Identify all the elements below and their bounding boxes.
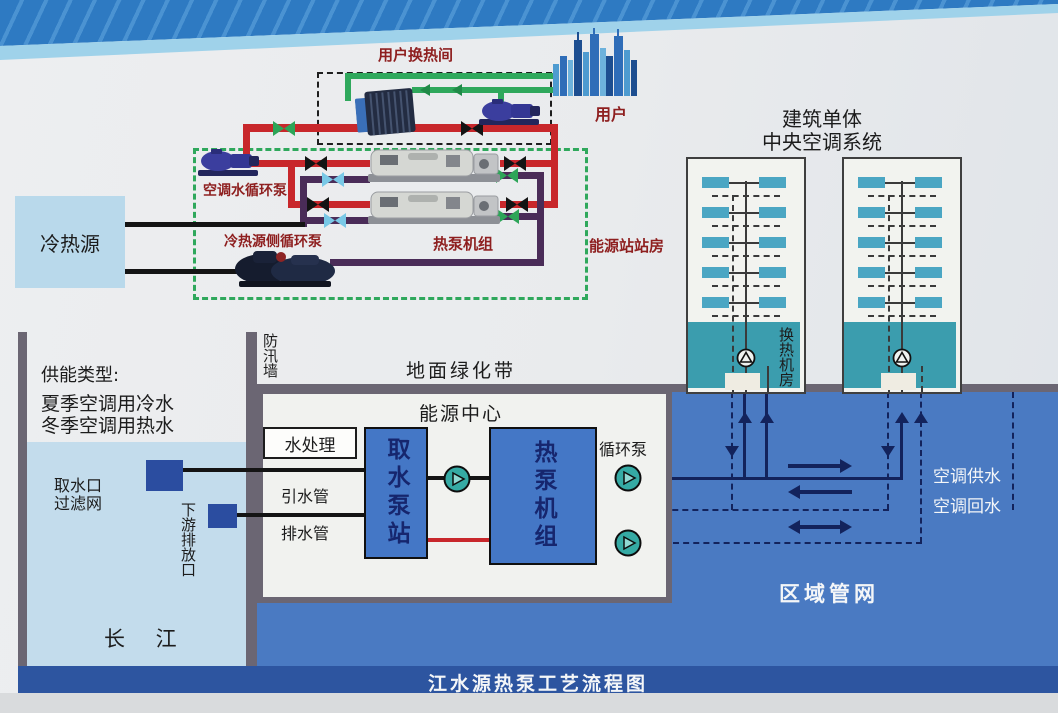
fan-coil [915, 237, 942, 248]
floor-dash [868, 195, 936, 197]
floor-connector [729, 272, 763, 274]
heat-pump-machine-1 [368, 145, 500, 183]
warm-return-pipe [424, 538, 490, 542]
valve-icon [497, 209, 519, 224]
b2-riser2 [921, 366, 923, 392]
diversion-pipe-label: 引水管 [281, 483, 329, 507]
supply-riser-b2 [900, 420, 903, 480]
fan-coil [759, 267, 786, 278]
right-arrow-icon [840, 520, 852, 534]
left-wall [18, 332, 27, 666]
user-circulation-pump [477, 97, 543, 127]
fan-coil [858, 237, 885, 248]
up-arrow-icon [914, 412, 928, 423]
heat-pump-units-label: 热泵机组 [433, 233, 493, 254]
supply-type-title: 供能类型: [41, 361, 119, 387]
green-flow-arrow [452, 84, 462, 96]
river-label: 长 江 [104, 623, 189, 653]
left-arrow-icon [788, 485, 800, 499]
diversion-pipe [183, 468, 366, 472]
fan-coil [858, 207, 885, 218]
energy-center-label: 能源中心 [419, 399, 503, 426]
valve-icon [322, 172, 344, 187]
footer-title: 江水源热泵工艺流程图 [18, 669, 1058, 696]
source-branch [300, 176, 307, 227]
chilled-supply-drop [345, 73, 351, 101]
city-skyline [551, 28, 639, 96]
fan-coil [759, 177, 786, 188]
floor-dash [712, 225, 780, 227]
ac-return-label: 空调回水 [933, 492, 1001, 517]
floor-connector [885, 212, 919, 214]
intake-block [146, 460, 183, 491]
fan-coil [759, 237, 786, 248]
pump-symbol [614, 529, 642, 557]
fan-coil [915, 297, 942, 308]
b2-base-block [881, 373, 916, 390]
floor-dash [868, 285, 936, 287]
fan-coil [702, 297, 729, 308]
building-2 [842, 157, 962, 394]
fan-coil [915, 207, 942, 218]
fan-coil [759, 297, 786, 308]
floor-connector [885, 242, 919, 244]
downstream-outlet-label: 下游排放口 [178, 502, 199, 577]
valve-icon [307, 197, 329, 212]
buildings-title-line2: 中央空调系统 [700, 126, 944, 155]
floor-dash [712, 285, 780, 287]
supply-winter-label: 冬季空调用热水 [41, 411, 174, 438]
chilled-return-pipe [412, 87, 557, 93]
energy-station-room-label: 能源站站房 [589, 235, 664, 256]
fan-coil [759, 207, 786, 218]
building-pump-symbol [892, 348, 912, 368]
building-pump-symbol [736, 348, 756, 368]
heat-pump-unit-box: 热泵机组 [489, 427, 597, 565]
floor-connector [729, 302, 763, 304]
valve-icon [273, 121, 295, 136]
up-arrow-icon [738, 412, 752, 423]
green-flow-arrow [420, 84, 430, 96]
fan-coil [858, 267, 885, 278]
fan-coil [858, 177, 885, 188]
district-network-label: 区域管网 [779, 578, 879, 608]
intake-filter-label-2: 过滤网 [54, 490, 102, 514]
valve-icon [324, 213, 346, 228]
drain-pipe-label: 排水管 [281, 520, 329, 544]
source-return-pipe [330, 259, 544, 266]
heat-pump-unit-label: 热泵机组 [526, 440, 560, 552]
heat-exchange-room-label: 换热机房 [776, 327, 797, 387]
drain-pipe [236, 513, 366, 517]
ac-water-pump [196, 146, 262, 178]
floor-dash [868, 225, 936, 227]
pump-symbol [614, 464, 642, 492]
bottom-edge-strip [0, 693, 1058, 713]
plate-heat-exchanger [354, 85, 422, 138]
floor-connector [729, 212, 763, 214]
process-flow-board: 空调供水 空调回水 区域管网 能源中心 水处理 取水泵站 热泵机组 循环泵 引水… [0, 0, 1058, 713]
source-side-pump-label: 冷热源侧循环泵 [224, 231, 322, 251]
left-arrow-icon [788, 520, 800, 534]
down-arrow-icon [881, 446, 895, 457]
fan-coil [915, 267, 942, 278]
ac-supply-label: 空调供水 [933, 462, 1001, 487]
circulation-pump-label: 循环泵 [599, 436, 647, 460]
floor-connector [729, 182, 763, 184]
intake-pump-station-box: 取水泵站 [364, 427, 428, 559]
b1-supply-riser [743, 392, 746, 478]
floor-dash [868, 255, 936, 257]
red-riser [551, 124, 558, 208]
up-arrow-icon [895, 412, 909, 423]
flood-wall-label: 防汛墙 [260, 333, 281, 378]
pump-symbol [443, 465, 471, 493]
valve-icon [305, 156, 327, 171]
floor-dash [712, 315, 780, 317]
floor-connector [729, 242, 763, 244]
flow-arrow-both [800, 525, 840, 529]
floor-connector [885, 302, 919, 304]
fan-coil [702, 207, 729, 218]
floor-dash [712, 195, 780, 197]
water-treatment-box: 水处理 [263, 427, 357, 459]
user-label: 用户 [595, 101, 627, 125]
cold-heat-source-label: 冷热源 [40, 228, 100, 257]
fan-coil [702, 177, 729, 188]
fan-coil [915, 177, 942, 188]
b1-supply-riser2 [765, 392, 768, 478]
fan-coil [702, 267, 729, 278]
flow-arrow-left [800, 490, 852, 494]
discharge-block [208, 504, 237, 528]
flood-wall [246, 332, 257, 666]
b1-base-block [725, 373, 760, 390]
up-arrow-icon [760, 412, 774, 423]
fan-coil [702, 237, 729, 248]
fan-coil [858, 297, 885, 308]
far-riser [1012, 392, 1014, 510]
down-arrow-icon [725, 446, 739, 457]
user-exchange-room-label: 用户换热间 [378, 44, 453, 65]
source-line-2 [125, 269, 247, 274]
floor-connector [885, 272, 919, 274]
source-side-pumps [233, 245, 337, 289]
source-riser [537, 172, 544, 266]
source-line-1 [125, 222, 305, 227]
right-arrow-icon [840, 459, 852, 473]
cold-heat-source-box: 冷热源 [15, 196, 125, 288]
greenbelt-label: 地面绿化带 [406, 356, 516, 383]
flow-arrow-right [788, 464, 840, 468]
chilled-supply-pipe [345, 73, 557, 79]
heat-pump-machine-2 [368, 187, 500, 225]
floor-connector [885, 182, 919, 184]
floor-dash [868, 315, 936, 317]
red-branch-drop [288, 160, 295, 206]
b1-riser2 [767, 366, 769, 392]
ac-water-pump-label: 空调水循环泵 [203, 180, 287, 200]
intake-pump-station-label: 取水泵站 [379, 437, 413, 549]
floor-dash [712, 255, 780, 257]
water-treatment-label: 水处理 [285, 431, 336, 456]
